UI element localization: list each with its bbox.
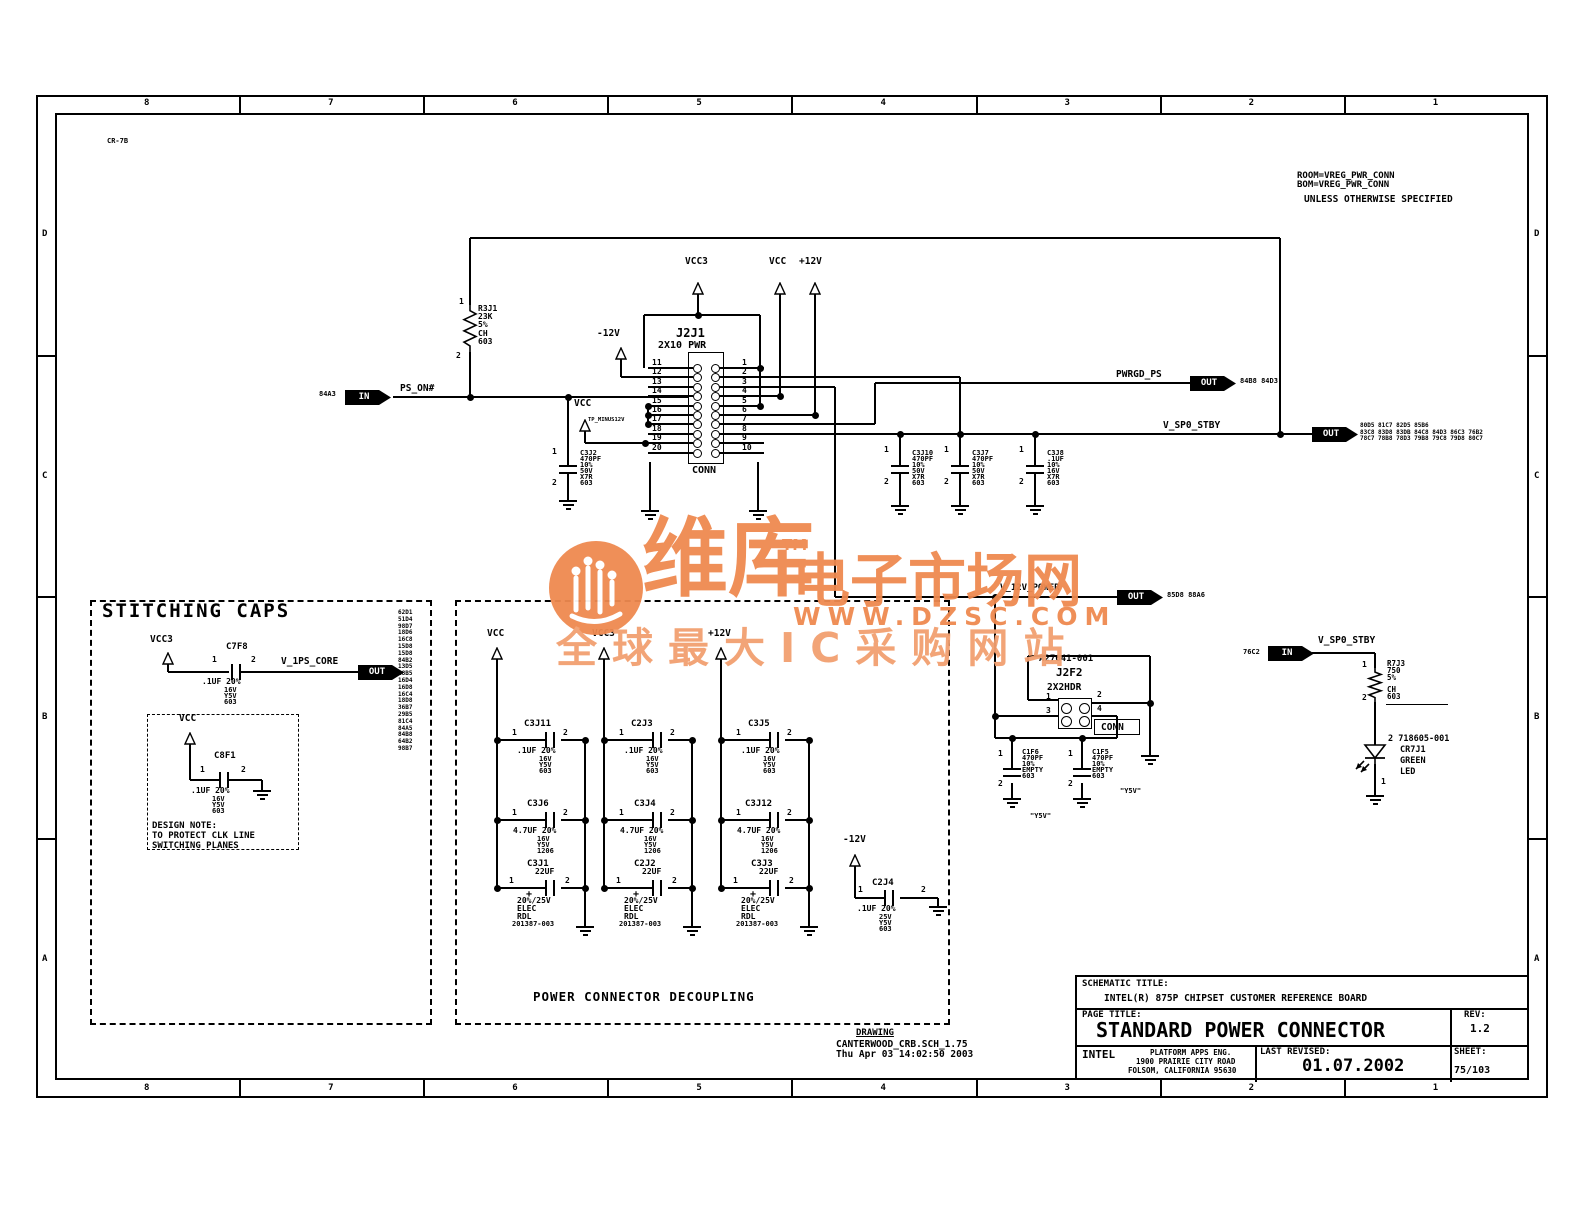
label: 1 — [552, 448, 557, 456]
connector-pin — [711, 383, 720, 392]
junction-dot — [992, 594, 999, 601]
capacitor-plates — [891, 465, 909, 467]
wire — [1374, 653, 1376, 668]
ground-symbol — [1007, 802, 1018, 804]
wire — [1011, 738, 1013, 768]
label: 4 — [1097, 705, 1102, 713]
revised-date: 01.07.2002 — [1302, 1058, 1404, 1075]
ground-symbol — [756, 518, 761, 520]
wire — [1027, 656, 1029, 700]
pin-number: 9 — [742, 434, 747, 442]
label: 85D8 88A6 — [1167, 592, 1205, 599]
wire — [899, 473, 901, 505]
label: CH 603 — [1387, 686, 1401, 700]
label: VCC — [769, 257, 786, 267]
wire — [1312, 652, 1375, 654]
label: 84A3 — [319, 391, 336, 398]
wire — [567, 397, 569, 465]
label: 1 — [1046, 693, 1051, 701]
label: 76C2 — [1243, 649, 1260, 656]
net-flag-in: IN — [345, 390, 391, 405]
wire — [585, 442, 648, 444]
ground-symbol — [955, 509, 966, 511]
label: C3J7 470PF 10% 50V X7R 603 — [972, 450, 993, 486]
label: 2 — [552, 479, 557, 487]
label: J2J1 — [676, 327, 705, 339]
ground-symbol — [1073, 798, 1091, 800]
label: C3J2 470PF 10% 50V X7R 603 — [580, 450, 601, 486]
wire — [959, 377, 961, 434]
wire — [779, 292, 781, 396]
wire — [1279, 238, 1281, 434]
net-flag-out: OUT — [1117, 590, 1163, 605]
label: "Y5V" — [1030, 813, 1051, 820]
capacitor-plates — [559, 465, 577, 467]
label: 2 — [1097, 691, 1102, 699]
ground-symbol — [753, 514, 764, 516]
label: VCC3 — [685, 257, 708, 267]
wire — [1374, 702, 1376, 745]
wire — [835, 596, 1117, 598]
pin-number: 16 — [652, 406, 662, 414]
ground-symbol — [1010, 806, 1015, 808]
wire — [995, 715, 1058, 717]
label: -12V — [597, 329, 620, 339]
junction-dot — [645, 412, 652, 419]
label: 2 718605-001 — [1388, 735, 1449, 744]
ground-symbol — [1370, 799, 1381, 801]
junction-dot — [957, 431, 964, 438]
org-line: PLATFORM APPS ENG. — [1150, 1049, 1231, 1057]
connector-pin — [1061, 703, 1072, 714]
wire — [469, 238, 471, 305]
connector-pin — [693, 449, 702, 458]
ground-symbol — [641, 510, 659, 512]
junction-dot — [645, 421, 652, 428]
label: 2X2HDR — [1047, 683, 1081, 693]
net-flag-out: OUT — [1190, 376, 1236, 391]
power-arrow-icon — [774, 280, 786, 299]
rev-label: REV: — [1464, 1011, 1486, 1020]
connector-pin — [1079, 703, 1090, 714]
wire — [757, 462, 759, 510]
connector-pin — [711, 430, 720, 439]
junction-dot — [695, 312, 702, 319]
capacitor-plates — [1003, 768, 1021, 770]
label: +12V — [799, 257, 822, 267]
connector-pin — [1079, 716, 1090, 727]
wire — [469, 352, 471, 397]
capacitor-plates — [891, 472, 909, 474]
connector-pin — [711, 449, 720, 458]
junction-dot — [757, 403, 764, 410]
wire — [899, 434, 901, 465]
wire — [959, 434, 961, 465]
label: 2 — [1068, 780, 1073, 788]
connector-pin — [711, 373, 720, 382]
wire — [1081, 738, 1083, 768]
pin-number: 7 — [742, 415, 747, 423]
junction-dot — [1147, 700, 1154, 707]
wire — [643, 315, 645, 368]
wire — [1034, 473, 1036, 505]
label: 1 — [1019, 446, 1024, 454]
junction-dot — [645, 403, 652, 410]
power-arrow-icon — [809, 280, 821, 299]
label: BOM=VREG_PWR_CONN — [1297, 181, 1389, 190]
label: CH 603 — [478, 330, 492, 346]
label: J2F2 — [1056, 667, 1083, 678]
ground-symbol — [895, 509, 906, 511]
label: 1 — [944, 446, 949, 454]
capacitor-plates — [1003, 775, 1021, 777]
ground-symbol — [1141, 755, 1159, 757]
wire — [759, 315, 761, 406]
resistor-symbol — [1365, 668, 1385, 706]
schematic-title-label: SCHEMATIC TITLE: — [1082, 980, 1169, 989]
wire — [834, 387, 836, 597]
wire — [1092, 715, 1117, 717]
ground-symbol — [1145, 759, 1156, 761]
ground-symbol — [1373, 803, 1378, 805]
label: R7J3 750 5% — [1387, 660, 1405, 681]
decoupling-box — [455, 600, 950, 1025]
capacitor-plates — [951, 465, 969, 467]
wire — [959, 473, 961, 505]
label: LED — [1400, 768, 1415, 777]
connector-pin — [711, 420, 720, 429]
connector-pin — [693, 420, 702, 429]
schematic-page: 8877665544332211DDCCBBAA INOUTOUTOUTOUTI… — [0, 0, 1584, 1223]
label: CR-7B — [107, 138, 128, 145]
wire — [1011, 783, 1013, 798]
pin-number: 10 — [742, 444, 752, 452]
label: C1F6 470PF 10% EMPTY 603 — [1022, 749, 1043, 779]
junction-dot — [777, 393, 784, 400]
wire — [649, 462, 651, 510]
design-note-box — [147, 714, 299, 850]
sheet-number: 75/103 — [1454, 1066, 1490, 1076]
pin-number: 8 — [742, 425, 747, 433]
connector-pin — [693, 383, 702, 392]
connector-pin — [693, 373, 702, 382]
net-flag-in: IN — [1268, 646, 1314, 661]
label: V_SP0_STBY — [1318, 636, 1375, 646]
address-line2: FOLSOM, CALIFORNIA 95630 — [1128, 1067, 1236, 1075]
ground-symbol — [1030, 509, 1041, 511]
junction-dot — [992, 713, 999, 720]
ground-symbol — [1033, 513, 1038, 515]
pin-number: 13 — [652, 378, 662, 386]
connector-pin — [711, 439, 720, 448]
label: CONN — [1101, 723, 1124, 733]
connector-pin — [693, 402, 702, 411]
wire — [644, 314, 760, 316]
wire — [719, 452, 764, 454]
title-block: SCHEMATIC TITLE: INTEL(R) 875P CHIPSET C… — [1075, 975, 1529, 1080]
led-symbol — [1352, 743, 1392, 779]
label: "Y5V" — [1120, 788, 1141, 795]
connector-pin — [693, 439, 702, 448]
label: V_SP0_STBY — [1163, 421, 1220, 431]
pin-number: 3 — [742, 378, 747, 386]
capacitor-plates — [1026, 472, 1044, 474]
wire — [1386, 704, 1448, 705]
address-line1: 1900 PRAIRIE CITY ROAD — [1136, 1058, 1235, 1066]
wire — [719, 395, 780, 397]
pin-number: 4 — [742, 387, 747, 395]
capacitor-plates — [1026, 465, 1044, 467]
junction-dot — [757, 365, 764, 372]
label: 3 — [1046, 707, 1051, 715]
label: 2 — [884, 478, 889, 486]
junction-dot — [1079, 735, 1086, 742]
ground-symbol — [1080, 806, 1085, 808]
pin-number: 19 — [652, 434, 662, 442]
label: R3J1 23K 5% — [478, 305, 497, 329]
junction-dot — [642, 440, 649, 447]
connector-pin — [693, 430, 702, 439]
pin-number: 14 — [652, 387, 662, 395]
wire — [719, 405, 760, 407]
schematic-title: INTEL(R) 875P CHIPSET CUSTOMER REFERENCE… — [1104, 994, 1367, 1004]
net-flag-out: OUT — [1312, 427, 1358, 442]
sheet-label: SHEET: — [1454, 1048, 1487, 1057]
wire — [1034, 434, 1036, 465]
label: TP_MINUS12V — [588, 418, 624, 424]
label: C3J8 .1UF 10% 16V X7R 603 — [1047, 450, 1064, 486]
decoupling-title: POWER CONNECTOR DECOUPLING — [533, 991, 755, 1004]
wire — [393, 396, 688, 398]
wire — [621, 376, 648, 378]
label: UNLESS OTHERWISE SPECIFIED — [1304, 195, 1453, 205]
wire — [1028, 699, 1058, 701]
label: A27641-001 — [1039, 655, 1093, 664]
ground-symbol — [1026, 505, 1044, 507]
connector-pin — [693, 392, 702, 401]
company-name: INTEL — [1082, 1049, 1115, 1060]
label: PWRGD_PS — [1116, 370, 1162, 380]
label: 1 — [1381, 778, 1386, 786]
pin-number: 5 — [742, 397, 747, 405]
stitching-caps-title: STITCHING CAPS — [102, 602, 290, 621]
label: CR7J1 — [1400, 746, 1426, 755]
label: GREEN — [1400, 757, 1426, 766]
ground-symbol — [898, 513, 903, 515]
wire — [719, 414, 815, 416]
label: CONN — [692, 466, 716, 476]
ground-symbol — [951, 505, 969, 507]
connector-pin — [693, 364, 702, 373]
pin-number: 17 — [652, 415, 662, 423]
connector-pin — [711, 402, 720, 411]
connector-pin — [1061, 716, 1072, 727]
connector-pin — [693, 411, 702, 420]
wire — [648, 452, 693, 454]
junction-dot — [812, 412, 819, 419]
label: 1 — [998, 750, 1003, 758]
wire — [567, 474, 569, 500]
pin-number: 2 — [742, 368, 747, 376]
ground-symbol — [749, 510, 767, 512]
pin-number: 20 — [652, 444, 662, 452]
rev-value: 1.2 — [1470, 1023, 1490, 1034]
junction-dot — [1032, 431, 1039, 438]
pin-number: 6 — [742, 406, 747, 414]
label: 80D5 81C7 82D5 85B6 83C8 83D8 83DB 84C8 … — [1360, 423, 1483, 443]
wire — [874, 383, 876, 424]
ground-symbol — [645, 514, 656, 516]
connector-pin — [711, 364, 720, 373]
label: 2 — [1019, 478, 1024, 486]
ground-symbol — [1003, 798, 1021, 800]
wire — [470, 237, 1280, 239]
ground-symbol — [566, 508, 571, 510]
label: 2 — [944, 478, 949, 486]
ground-symbol — [891, 505, 909, 507]
ground-symbol — [1148, 763, 1153, 765]
junction-dot — [1277, 431, 1284, 438]
label: 1 — [884, 446, 889, 454]
ground-symbol — [648, 518, 653, 520]
pin-number: 11 — [652, 359, 662, 367]
pin-number: 15 — [652, 397, 662, 405]
ground-symbol — [1077, 802, 1088, 804]
pin-number: 18 — [652, 425, 662, 433]
junction-dot — [1009, 735, 1016, 742]
junction-dot — [565, 394, 572, 401]
pin-number: 12 — [652, 368, 662, 376]
capacitor-plates — [1073, 768, 1091, 770]
drawing-date: Thu Apr 03 14:02:50 2003 — [836, 1050, 973, 1060]
ground-symbol — [559, 500, 577, 502]
page-title: STANDARD POWER CONNECTOR — [1096, 1020, 1385, 1040]
label: PS_ON# — [400, 384, 434, 394]
junction-dot — [467, 394, 474, 401]
capacitor-plates — [951, 472, 969, 474]
drawing-label: DRAWING — [856, 1029, 894, 1038]
wire — [1081, 783, 1083, 798]
label: C1F5 470PF 10% EMPTY 603 — [1092, 749, 1113, 779]
label: 1 — [1068, 750, 1073, 758]
label: 2 — [998, 780, 1003, 788]
ground-symbol — [958, 513, 963, 515]
power-arrow-icon — [692, 280, 704, 299]
ground-symbol — [1366, 795, 1384, 797]
wire — [814, 292, 816, 415]
label: 2X10 PWR — [658, 341, 706, 351]
wire — [719, 376, 960, 379]
wire — [719, 386, 835, 388]
resistor-symbol — [460, 305, 480, 356]
label: 84B8 84D3 — [1240, 378, 1278, 385]
label: VCC — [574, 399, 591, 409]
junction-dot — [897, 431, 904, 438]
pin-number: 1 — [742, 359, 747, 367]
capacitor-plates — [559, 472, 577, 474]
connector-pin — [711, 411, 720, 420]
label: C3J10 470PF 10% 50V X7R 603 — [912, 450, 933, 486]
capacitor-plates — [1073, 775, 1091, 777]
ground-symbol — [563, 504, 574, 506]
label: V_12V_POWER — [1000, 584, 1060, 593]
connector-pin — [711, 392, 720, 401]
power-arrow-icon — [615, 345, 627, 364]
wire — [875, 382, 1190, 384]
